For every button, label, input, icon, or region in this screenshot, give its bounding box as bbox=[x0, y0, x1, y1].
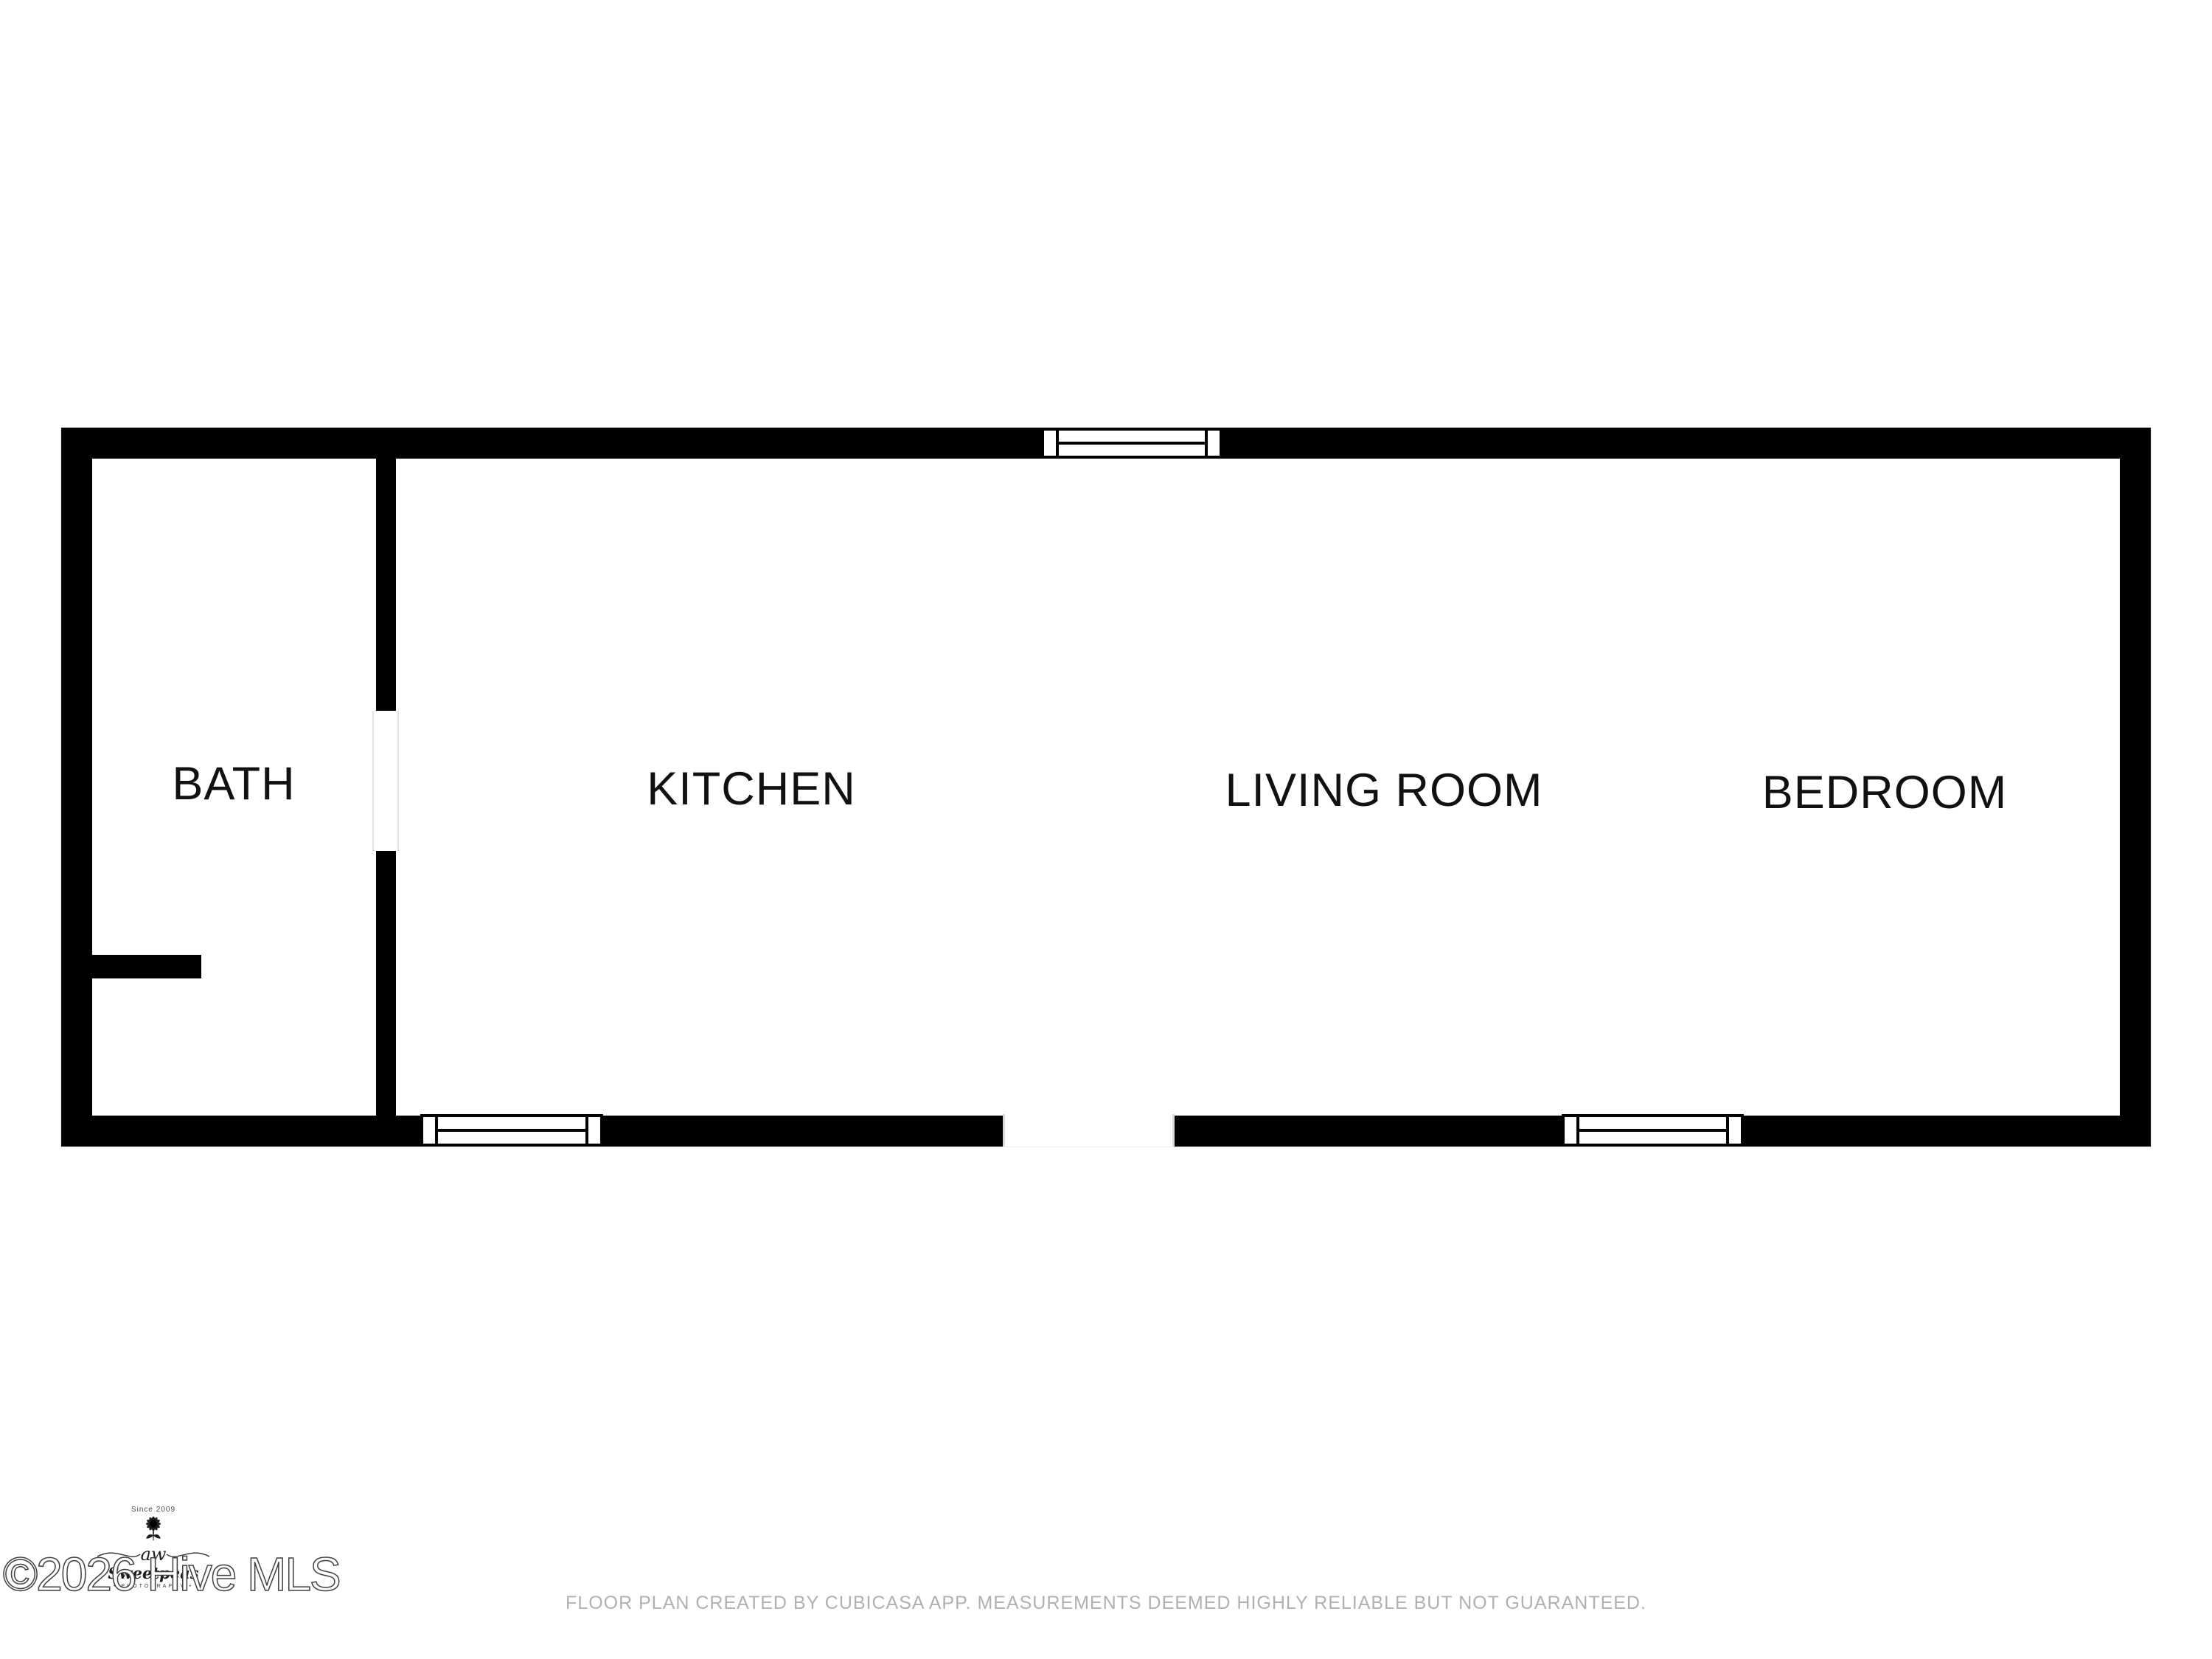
interior-wall-bath-lower bbox=[376, 851, 396, 1116]
window-glass-line bbox=[438, 1129, 585, 1132]
bath-door-opening bbox=[372, 711, 399, 851]
room-label-bedroom: BEDROOM bbox=[1762, 766, 2008, 819]
window-jamb bbox=[585, 1117, 588, 1144]
window-glass-line bbox=[1059, 442, 1205, 445]
room-label-living-room: LIVING ROOM bbox=[1225, 764, 1543, 817]
interior-wall-bath-upper bbox=[376, 459, 396, 711]
cubicasa-disclaimer: FLOOR PLAN CREATED BY CUBICASA APP. MEAS… bbox=[0, 1593, 2212, 1614]
logo-since-text: Since 2009 bbox=[94, 1506, 212, 1514]
entry-door-opening bbox=[1003, 1114, 1175, 1147]
window-jamb bbox=[1205, 431, 1208, 456]
window-bedroom bbox=[1562, 1114, 1744, 1147]
room-label-bath: BATH bbox=[172, 757, 295, 810]
interior-wall-stub bbox=[92, 955, 201, 978]
floor-plan-page: BATH KITCHEN LIVING ROOM BEDROOM Since 2… bbox=[0, 0, 2212, 1659]
sunflower-icon bbox=[139, 1514, 168, 1543]
window-top-wall bbox=[1041, 428, 1222, 459]
window-kitchen bbox=[420, 1114, 603, 1147]
room-label-kitchen: KITCHEN bbox=[647, 762, 856, 815]
window-jamb bbox=[1726, 1117, 1729, 1144]
window-glass-line bbox=[1579, 1129, 1726, 1132]
